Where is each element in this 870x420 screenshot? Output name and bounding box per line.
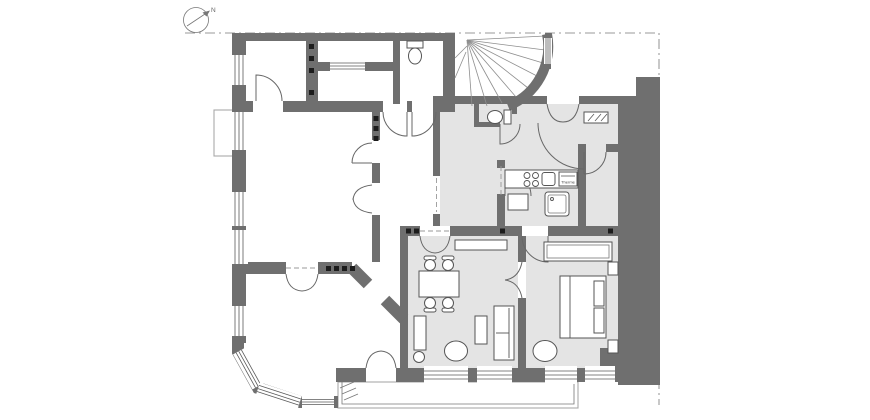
wall-segment: [450, 226, 522, 236]
flue-dot: [500, 229, 505, 234]
flue-dot: [414, 229, 419, 234]
toilet-tank: [407, 41, 423, 48]
flue-dot: [334, 266, 339, 271]
flue-dot: [309, 56, 314, 61]
flue-dot: [406, 229, 411, 234]
dining-chair: [442, 256, 454, 271]
sideboard: [455, 240, 507, 250]
wall-segment: [579, 96, 636, 104]
window: [477, 366, 512, 384]
wall-segment: [433, 104, 440, 176]
window: [230, 230, 248, 264]
wall-segment: [433, 214, 440, 226]
flue-dot: [608, 229, 613, 234]
wall-segment: [548, 226, 636, 236]
sink-icon: [542, 173, 555, 186]
door-swing: [383, 112, 407, 136]
wall-segment: [283, 101, 383, 112]
wall-segment: [396, 368, 424, 382]
wall-segment: [372, 163, 380, 183]
pillow: [594, 281, 604, 306]
entrance-door-leaf: [584, 112, 608, 123]
wardrobe: [544, 242, 612, 261]
wall-segment: [407, 101, 412, 112]
spiral-staircase: [455, 34, 548, 106]
armchair: [445, 341, 468, 361]
terrace-door-swing: [366, 351, 396, 368]
north-label: N: [211, 7, 216, 14]
flue-dot: [309, 44, 314, 49]
window: [545, 366, 577, 384]
bay-window: [233, 348, 264, 389]
wall-segment: [615, 368, 636, 382]
stairwell-window: [544, 38, 552, 64]
flue-dot: [374, 126, 379, 131]
kitchen-table: [508, 194, 528, 210]
double-door-swing: [286, 274, 318, 291]
water-heater-label: Therme: [561, 180, 576, 185]
toilet-icon: [488, 111, 503, 124]
wall-segment: [577, 368, 585, 382]
wall-segment: [578, 144, 586, 226]
door-swing: [256, 75, 282, 101]
floor-plan-drawing: N: [0, 0, 870, 420]
flue-dot: [309, 90, 314, 95]
wall-segment: [232, 33, 455, 41]
wall-segment: [468, 368, 477, 382]
wc-top: [407, 41, 423, 64]
window: [230, 112, 248, 150]
wall-segment: [232, 101, 253, 112]
sofa: [494, 306, 514, 360]
diagonal-wall: [352, 268, 404, 319]
flue-dot: [374, 136, 379, 141]
dining-table: [419, 271, 459, 297]
bay-window: [256, 382, 302, 408]
flue-dot: [326, 266, 331, 271]
neighbor-building-wall: [636, 77, 660, 385]
wall-segment: [365, 62, 393, 71]
flue-dot: [309, 68, 314, 73]
wall-segment: [606, 144, 636, 152]
window: [230, 55, 248, 85]
wall-segment: [393, 38, 400, 104]
toilet-icon: [409, 48, 422, 64]
window: [585, 366, 615, 384]
door-swing: [412, 112, 436, 136]
dining-chair: [424, 256, 436, 271]
shelf: [414, 316, 426, 350]
nightstand: [608, 262, 618, 275]
wall-segment: [336, 368, 366, 382]
north-compass-icon: N: [184, 7, 217, 33]
bay-window: [302, 396, 334, 408]
window: [230, 306, 248, 336]
plant: [414, 352, 425, 363]
wall-segment: [318, 62, 330, 71]
wall-segment: [518, 298, 526, 368]
dining-chair: [424, 298, 436, 313]
wc-hall: [488, 110, 512, 124]
pillow: [594, 308, 604, 333]
window: [424, 366, 468, 384]
dining-chair: [442, 298, 454, 313]
flue-dot: [342, 266, 347, 271]
nightstand: [608, 340, 618, 353]
wall-segment: [372, 215, 380, 262]
flue-dot: [374, 116, 379, 121]
wall-segment: [512, 368, 545, 382]
shower-tray: [545, 192, 569, 216]
water-heater: Therme: [559, 172, 577, 186]
toilet-tank: [504, 110, 511, 124]
floor-plan-page: N: [0, 0, 870, 420]
door-swing: [352, 143, 372, 163]
armchair: [533, 341, 557, 362]
window: [230, 192, 248, 226]
coffee-table: [475, 316, 487, 344]
flue-dot: [350, 266, 355, 271]
interior-window: [330, 60, 365, 72]
wall-segment: [497, 194, 505, 226]
double-door-swing: [353, 185, 372, 213]
double-bed: [560, 276, 606, 338]
wall-segment: [400, 226, 408, 372]
